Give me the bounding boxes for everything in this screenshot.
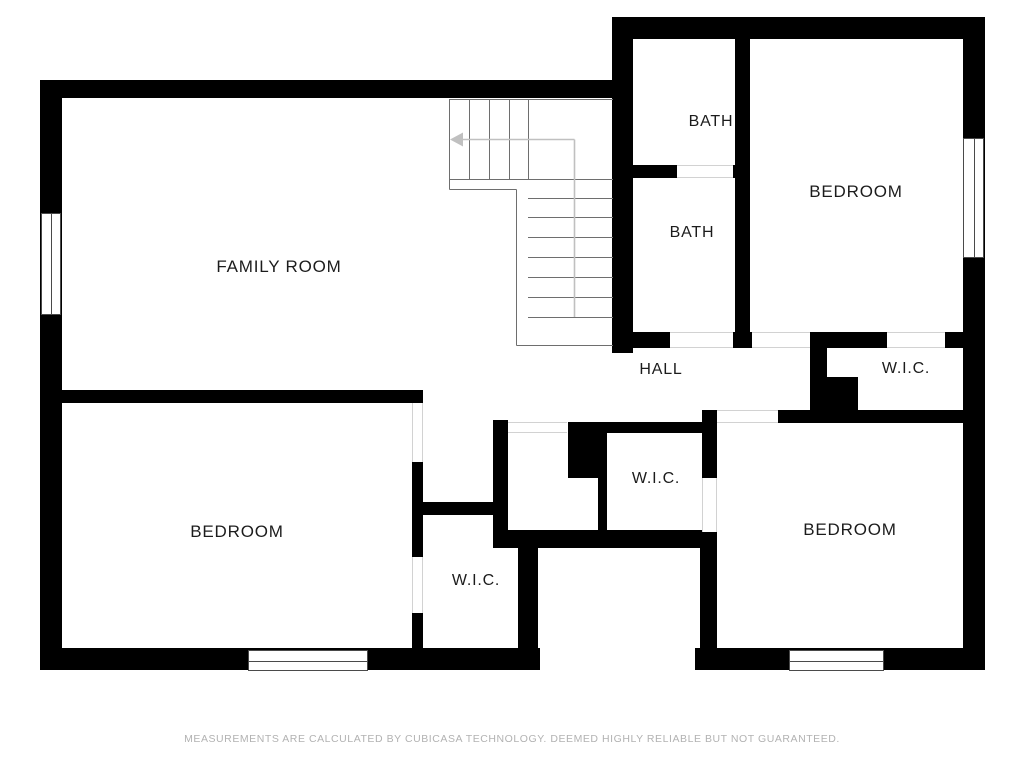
- wall-center-vertical-a: [493, 420, 508, 535]
- wall-wic-tr-chunk: [827, 377, 858, 422]
- room-label-wic-center: W.I.C.: [632, 470, 680, 488]
- room-label-bedroom-bottom-left: BEDROOM: [190, 522, 283, 542]
- window-bedroom-br-bottom: [789, 650, 884, 671]
- door-opening-bedroom-tr: [752, 332, 810, 348]
- door-opening-wic-tr: [887, 332, 945, 348]
- room-label-wic-bottom-left: W.I.C.: [452, 572, 500, 590]
- wall-wic-center-left: [598, 478, 607, 532]
- window-bedroom-bl-bottom: [248, 650, 368, 671]
- wall-hall-top-c: [810, 332, 887, 348]
- room-label-bath-lower: BATH: [670, 224, 715, 242]
- wall-closet-chunk: [568, 422, 607, 478]
- wall-bath-section-left: [612, 17, 633, 353]
- staircase-outline: [450, 99, 614, 346]
- door-opening-closet-center: [508, 422, 567, 433]
- door-opening-bath-lower: [670, 332, 733, 348]
- room-label-wic-top-right: W.I.C.: [882, 360, 930, 378]
- floor-plan: FAMILY ROOM BATH BATH BEDROOM W.I.C. HAL…: [0, 0, 1024, 768]
- door-opening-wic-bl: [412, 557, 423, 613]
- wall-bedroom-br-left: [700, 532, 717, 670]
- wall-center-bottom: [493, 530, 717, 548]
- wall-exterior-right: [963, 17, 985, 670]
- door-opening-bedroom-bl: [412, 403, 423, 462]
- wall-hall-top-d: [945, 332, 963, 348]
- window-family-room-left: [41, 213, 61, 315]
- room-label-bedroom-bottom-right: BEDROOM: [803, 520, 896, 540]
- wall-bath-divider-a: [633, 165, 677, 178]
- room-label-family-room: FAMILY ROOM: [216, 257, 341, 277]
- wall-wic-bl-top: [423, 502, 498, 515]
- wall-bedroom-bl-right-b: [412, 613, 423, 650]
- window-bedroom-tr-right: [963, 138, 984, 258]
- wall-bath-bedroom-divider: [735, 39, 750, 332]
- wall-wic-center-right-upper: [702, 410, 717, 478]
- stair-treads-lower: [528, 199, 613, 318]
- wall-exterior-top-right: [612, 17, 985, 39]
- stair-walk-line: [462, 140, 575, 318]
- stair-direction-arrow-icon: [450, 133, 463, 147]
- room-label-hall: HALL: [639, 361, 682, 379]
- wall-bedroom-bl-right-a: [412, 462, 423, 557]
- wall-exterior-top-family: [40, 80, 633, 98]
- room-label-bath-upper: BATH: [689, 113, 734, 131]
- wall-wic-bl-right: [518, 548, 538, 670]
- wall-wic-tr-left: [810, 348, 827, 422]
- stair-treads-upper: [450, 100, 614, 180]
- door-opening-bedroom-br: [717, 410, 778, 423]
- wall-hall-top-b: [733, 332, 752, 348]
- wall-hall-top-a: [613, 332, 670, 348]
- wall-wic-center-top: [605, 422, 702, 433]
- door-opening-wic-center: [702, 478, 717, 532]
- measurements-disclaimer: MEASUREMENTS ARE CALCULATED BY CUBICASA …: [0, 733, 1024, 745]
- wall-bedroom-br-top: [778, 410, 963, 423]
- room-label-bedroom-top-right: BEDROOM: [809, 182, 902, 202]
- wall-exterior-left: [40, 80, 62, 670]
- wall-familyroom-bedroom: [50, 390, 423, 403]
- door-opening-bath-divider: [677, 165, 733, 178]
